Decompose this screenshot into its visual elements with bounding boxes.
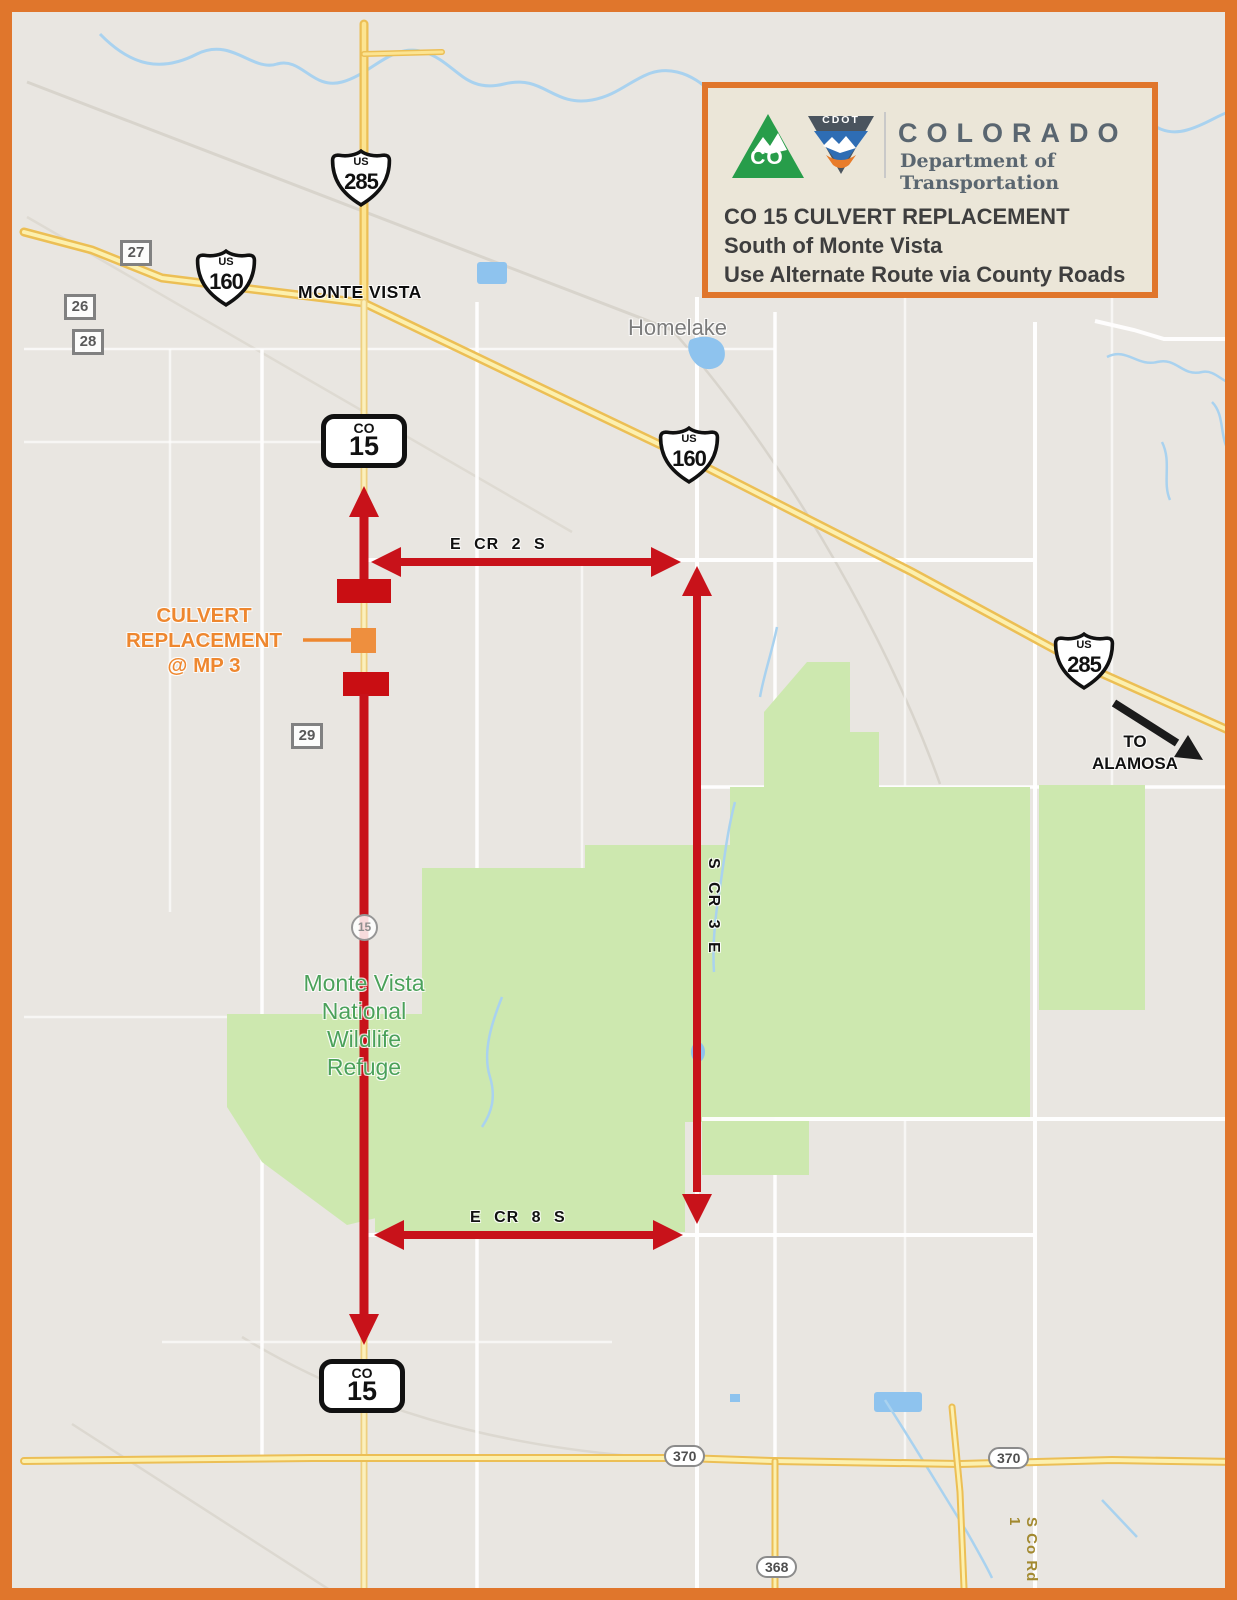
project-subtitle-2: Use Alternate Route via County Roads <box>724 262 1125 288</box>
county-road-27-marker: 27 <box>120 240 152 266</box>
e-cr-8-s-label: E CR 8 S <box>470 1209 566 1227</box>
county-road-28-marker: 28 <box>72 329 104 355</box>
refuge-label-line4: Refuge <box>254 1053 474 1081</box>
shield-number: 285 <box>330 169 392 195</box>
refuge-label-line2: National <box>254 997 474 1025</box>
closure-bar-north <box>337 579 391 603</box>
homelake-label: Homelake <box>628 315 727 341</box>
route-370-marker-east: 370 <box>988 1447 1029 1469</box>
culvert-location <box>303 628 376 653</box>
project-subtitle-1: South of Monte Vista <box>724 233 942 259</box>
shield-number: 160 <box>195 269 257 295</box>
culvert-callout-line2: REPLACEMENT <box>104 628 304 653</box>
project-title: CO 15 CULVERT REPLACEMENT <box>724 204 1070 230</box>
shield-system-label: US <box>658 433 720 445</box>
route-370-marker-west: 370 <box>664 1445 705 1467</box>
us-285-shield-north: US 285 <box>330 149 392 207</box>
us-160-shield-west: US 160 <box>195 249 257 307</box>
monte-vista-label: MONTE VISTA <box>298 282 422 303</box>
culvert-callout: CULVERT REPLACEMENT @ MP 3 <box>104 603 304 678</box>
shield-number: 160 <box>658 446 720 472</box>
to-alamosa-line2: ALAMOSA <box>1070 753 1200 775</box>
s-cr-3-e-label: S CR 3 E <box>704 858 722 954</box>
shield-system-label: US <box>1053 639 1115 651</box>
co-badge-number: 15 <box>326 434 402 459</box>
detour-map-flyer: CO CDOT COLORADO Department of Transport… <box>0 0 1237 1600</box>
logo-divider <box>884 112 886 178</box>
culvert-callout-line3: @ MP 3 <box>104 653 304 678</box>
to-alamosa-line1: TO <box>1070 731 1200 753</box>
us-160-shield-mid: US 160 <box>658 426 720 484</box>
to-alamosa-label: TO ALAMOSA <box>1070 731 1200 775</box>
refuge-label-line1: Monte Vista <box>254 969 474 997</box>
co-15-badge-south: CO 15 <box>319 1359 405 1413</box>
sh-15-circle-marker: 15 <box>351 914 378 941</box>
county-road-26-marker: 26 <box>64 294 96 320</box>
route-368-marker: 368 <box>756 1556 797 1578</box>
shield-number: 285 <box>1053 652 1115 678</box>
shield-system-label: US <box>330 156 392 168</box>
title-panel: CO CDOT COLORADO Department of Transport… <box>702 82 1158 298</box>
brand-sub-line1: Department of <box>900 150 1055 172</box>
shield-system-label: US <box>195 256 257 268</box>
logo-co-label: CO <box>734 146 800 170</box>
s-co-rd-1-label: S Co Rd 1 <box>1006 1517 1040 1588</box>
arrowhead-south <box>349 1314 379 1345</box>
cdot-logo: CO CDOT <box>730 110 876 182</box>
closure-bar-south <box>343 672 389 696</box>
logo-cdot-label: CDOT <box>812 114 870 126</box>
county-road-29-marker: 29 <box>291 723 323 749</box>
e-cr-2-s-label: E CR 2 S <box>450 536 546 554</box>
brand-name: COLORADO <box>898 118 1128 149</box>
brand-sub-line2: Transportation <box>900 172 1059 194</box>
co-15-badge-north: CO 15 <box>321 414 407 468</box>
co-badge-number: 15 <box>324 1379 400 1404</box>
refuge-label-line3: Wildlife <box>254 1025 474 1053</box>
us-285-shield-east: US 285 <box>1053 632 1115 690</box>
refuge-label: Monte Vista National Wildlife Refuge <box>254 969 474 1081</box>
culvert-site-square <box>351 628 376 653</box>
culvert-callout-line1: CULVERT <box>104 603 304 628</box>
